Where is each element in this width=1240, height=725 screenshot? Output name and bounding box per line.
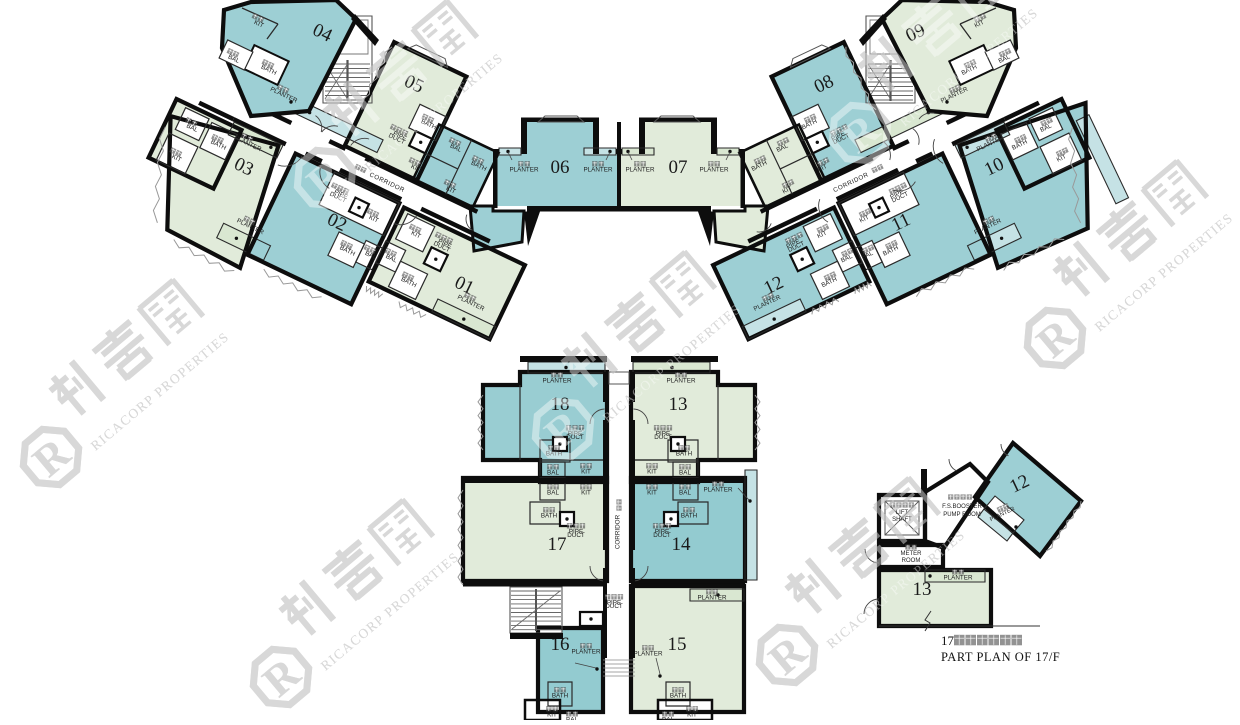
svg-text:PUMP ROOM: PUMP ROOM	[943, 512, 981, 518]
svg-text:BATH: BATH	[541, 513, 558, 520]
svg-text:PART PLAN OF 17/F: PART PLAN OF 17/F	[941, 650, 1060, 664]
svg-text:KIT: KIT	[687, 712, 697, 719]
svg-text:KIT: KIT	[547, 712, 557, 719]
svg-text:17: 17	[941, 633, 955, 648]
svg-text:DUCT: DUCT	[653, 532, 671, 539]
svg-text:BAL: BAL	[679, 490, 691, 497]
svg-text:F.S.BOOSTER: F.S.BOOSTER	[942, 504, 982, 510]
svg-text:DUCT: DUCT	[654, 434, 672, 441]
svg-text:BAL: BAL	[566, 717, 578, 720]
svg-text:PLANTER: PLANTER	[703, 487, 732, 494]
svg-text:PLANTER: PLANTER	[699, 167, 728, 174]
svg-text:PLANTER: PLANTER	[666, 378, 695, 385]
svg-text:PLANTER: PLANTER	[633, 651, 662, 658]
svg-text:BAL: BAL	[662, 717, 674, 720]
svg-text:15: 15	[668, 634, 687, 655]
svg-text:BAL: BAL	[547, 470, 559, 477]
svg-text:13: 13	[669, 394, 688, 415]
svg-text:CORRIDOR: CORRIDOR	[615, 514, 622, 549]
svg-text:KIT: KIT	[647, 469, 657, 476]
svg-text:KIT: KIT	[581, 490, 591, 497]
svg-text:BATH: BATH	[552, 693, 569, 700]
svg-text:PLANTER: PLANTER	[943, 575, 972, 582]
svg-text:BATH: BATH	[670, 693, 687, 700]
svg-text:PLANTER: PLANTER	[571, 649, 600, 656]
svg-text:KIT: KIT	[581, 469, 591, 476]
svg-text:DUCT: DUCT	[567, 532, 585, 539]
svg-text:BAL: BAL	[679, 470, 691, 477]
svg-text:07: 07	[669, 157, 688, 178]
svg-text:06: 06	[551, 157, 570, 178]
svg-text:PLANTER: PLANTER	[542, 378, 571, 385]
svg-text:BATH: BATH	[681, 513, 698, 520]
svg-text:BATH: BATH	[676, 451, 693, 458]
svg-text:BAL: BAL	[547, 490, 559, 497]
svg-text:17: 17	[548, 534, 567, 555]
svg-text:DUCT: DUCT	[605, 603, 623, 610]
svg-text:PLANTER: PLANTER	[583, 167, 612, 174]
svg-text:METER: METER	[901, 551, 923, 557]
svg-text:PLANTER: PLANTER	[697, 595, 726, 602]
svg-text:14: 14	[672, 534, 692, 555]
svg-text:KIT: KIT	[647, 490, 657, 497]
svg-text:PLANTER: PLANTER	[625, 167, 654, 174]
svg-text:PLANTER: PLANTER	[509, 167, 538, 174]
